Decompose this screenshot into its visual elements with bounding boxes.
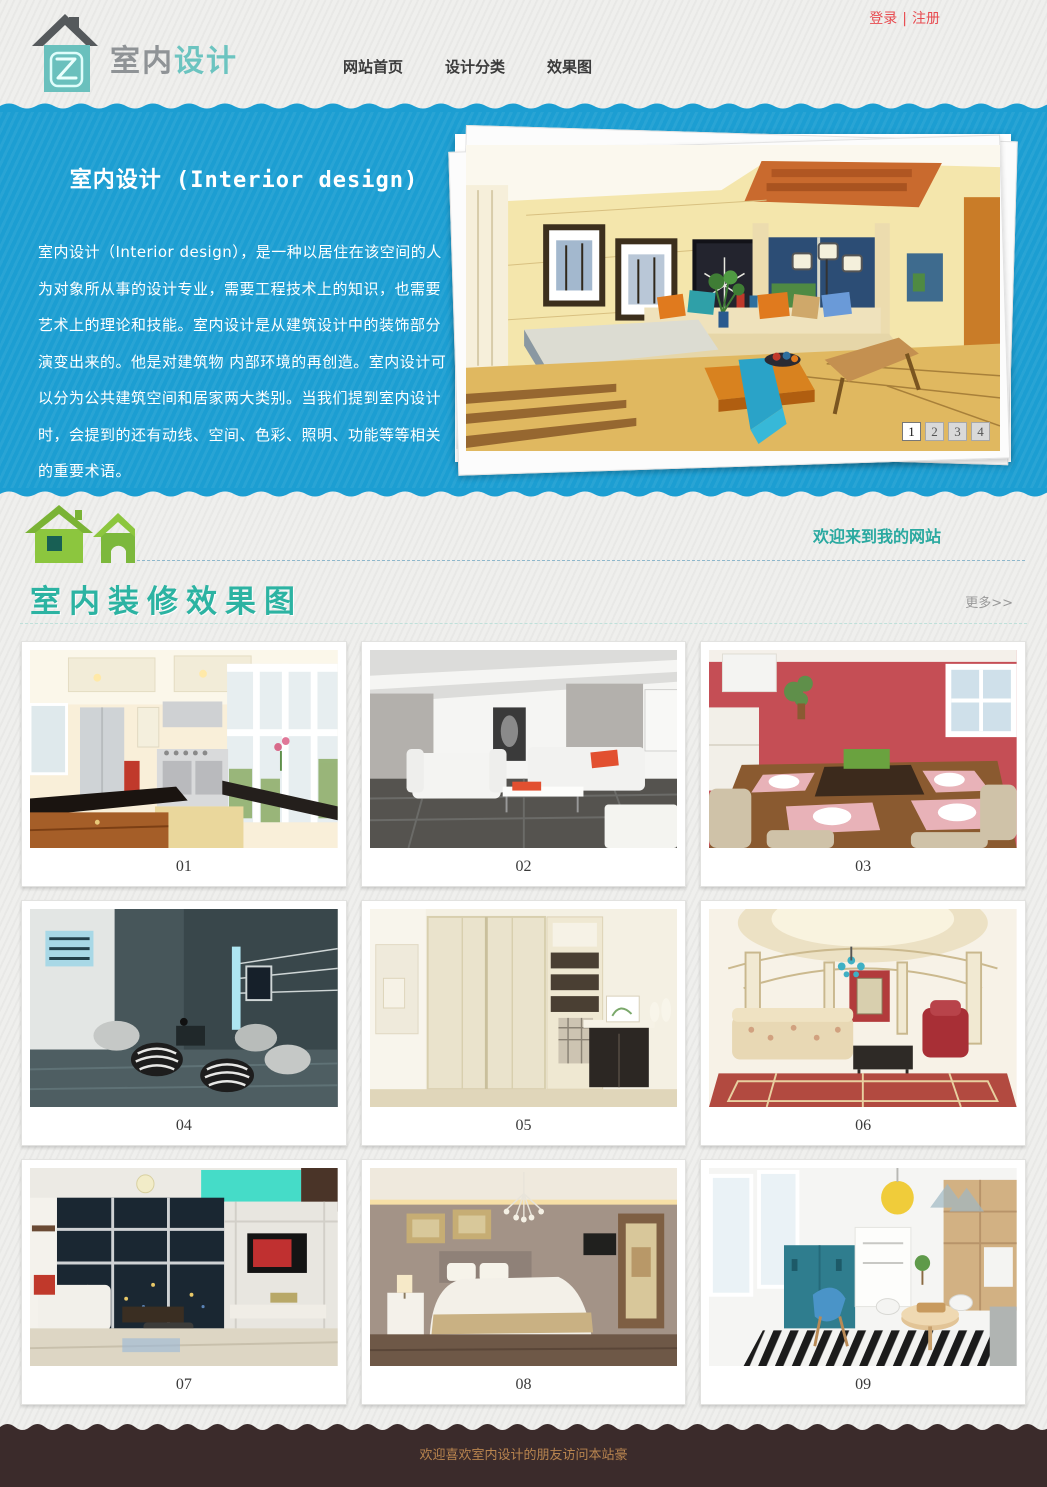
welcome-band: 欢迎来到我的网站 bbox=[0, 500, 1047, 570]
card-caption: 03 bbox=[709, 848, 1017, 886]
wardrobe-image bbox=[370, 909, 678, 1107]
classical-sketch-living-room-image bbox=[709, 909, 1017, 1107]
card-caption: 09 bbox=[709, 1366, 1017, 1404]
gallery-card-01[interactable]: 01 bbox=[21, 641, 347, 887]
more-link[interactable]: 更多>> bbox=[965, 592, 1013, 611]
night-living-room-image bbox=[30, 1168, 338, 1366]
hero-text-block: 室内设计 (Interior design) 室内设计（Interior des… bbox=[38, 162, 450, 490]
hero-title: 室内设计 (Interior design) bbox=[38, 162, 450, 194]
slider-pagination: 1 2 3 4 bbox=[902, 422, 990, 441]
card-caption: 06 bbox=[709, 1107, 1017, 1145]
house-logo-icon bbox=[30, 8, 100, 94]
gallery-card-05[interactable]: 05 bbox=[361, 900, 687, 1146]
link-separator: | bbox=[902, 11, 907, 27]
card-caption: 08 bbox=[370, 1366, 678, 1404]
account-links: 登录|注册 bbox=[869, 8, 940, 28]
footer-text: 欢迎喜欢室内设计的朋友访问本站豪 bbox=[419, 1447, 627, 1462]
scalloped-edge bbox=[0, 1420, 1047, 1434]
gallery-grid: 01 02 bbox=[21, 641, 1026, 1405]
register-link[interactable]: 注册 bbox=[912, 11, 940, 27]
hero-paragraph: 室内设计（Interior design），是一种以居住在该空间的人为对象所从事… bbox=[38, 234, 450, 490]
dashed-divider bbox=[137, 560, 1025, 561]
card-caption: 02 bbox=[370, 848, 678, 886]
nav-item-home[interactable]: 网站首页 bbox=[343, 56, 403, 77]
gallery-card-09[interactable]: 09 bbox=[700, 1159, 1026, 1405]
double-green-house-icon bbox=[25, 505, 135, 565]
site-logo[interactable]: 室内设计 bbox=[30, 8, 238, 94]
white-living-room-image bbox=[370, 650, 678, 848]
gallery-card-02[interactable]: 02 bbox=[361, 641, 687, 887]
dark-modern-lounge-image bbox=[30, 909, 338, 1107]
main-nav: 网站首页 设计分类 效果图 bbox=[343, 56, 592, 77]
nav-item-renderings[interactable]: 效果图 bbox=[547, 56, 592, 77]
scandinavian-room-image bbox=[709, 1168, 1017, 1366]
torn-edge-top bbox=[0, 100, 1047, 112]
site-header: 登录|注册 室内设计 网站首页 设计分类 效果图 bbox=[0, 0, 1047, 100]
hero-image-slider: 1 2 3 4 bbox=[455, 134, 1011, 462]
card-caption: 04 bbox=[30, 1107, 338, 1145]
gallery-section-head: 室内装修效果图 更多>> bbox=[0, 570, 1047, 625]
site-footer: 欢迎喜欢室内设计的朋友访问本站豪 bbox=[0, 1420, 1047, 1487]
gallery-title: 室内装修效果图 bbox=[30, 576, 303, 621]
logo-text: 室内设计 bbox=[110, 36, 238, 80]
slider-image-living-room-sketch[interactable]: 1 2 3 4 bbox=[466, 145, 1000, 451]
living-room-sketch-illustration bbox=[466, 145, 1000, 451]
hero-section: 室内设计 (Interior design) 室内设计（Interior des… bbox=[0, 100, 1047, 500]
gallery-card-06[interactable]: 06 bbox=[700, 900, 1026, 1146]
kitchen-image bbox=[30, 650, 338, 848]
card-caption: 05 bbox=[370, 1107, 678, 1145]
welcome-message: 欢迎来到我的网站 bbox=[813, 523, 941, 547]
card-caption: 07 bbox=[30, 1366, 338, 1404]
bedroom-image bbox=[370, 1168, 678, 1366]
pager-button-1[interactable]: 1 bbox=[902, 422, 921, 441]
red-dining-room-image bbox=[709, 650, 1017, 848]
torn-edge-bottom bbox=[0, 488, 1047, 500]
card-caption: 01 bbox=[30, 848, 338, 886]
nav-item-categories[interactable]: 设计分类 bbox=[445, 56, 505, 77]
gallery-card-08[interactable]: 08 bbox=[361, 1159, 687, 1405]
dashed-divider bbox=[20, 623, 1027, 624]
gallery-card-07[interactable]: 07 bbox=[21, 1159, 347, 1405]
pager-button-4[interactable]: 4 bbox=[971, 422, 990, 441]
gallery-card-04[interactable]: 04 bbox=[21, 900, 347, 1146]
login-link[interactable]: 登录 bbox=[869, 11, 897, 27]
gallery-card-03[interactable]: 03 bbox=[700, 641, 1026, 887]
pager-button-3[interactable]: 3 bbox=[948, 422, 967, 441]
pager-button-2[interactable]: 2 bbox=[925, 422, 944, 441]
